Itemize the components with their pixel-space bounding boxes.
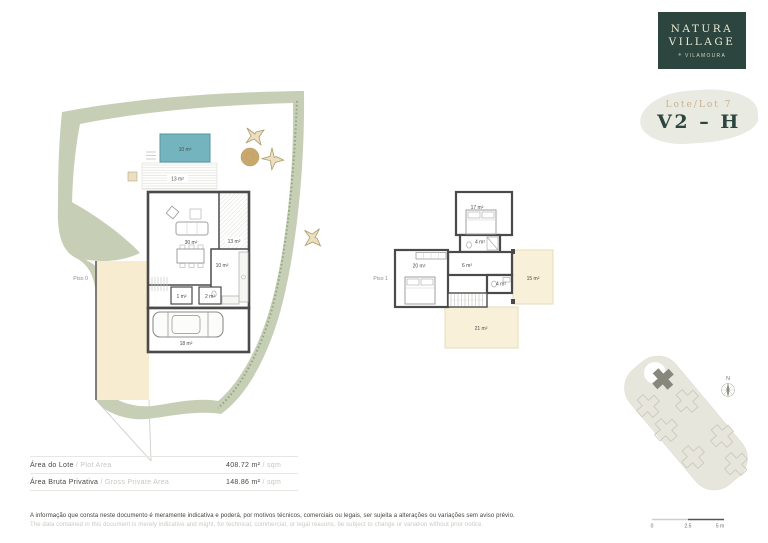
wall-stub [511, 299, 515, 304]
table-row: Área Bruta Privativa / Gross Private Are… [30, 473, 298, 491]
tree-icon [303, 228, 323, 249]
room-label-terrace-side: 15 m² [527, 276, 540, 282]
scale-label-zero: 0 [651, 524, 654, 530]
badge-unit-label: V2 – H [657, 111, 741, 133]
compass-north-label: N [726, 376, 730, 382]
room-label-pool: 10 m² [179, 147, 192, 153]
brochure-page: Piso 0 10 m² 13 m² 30 m² 13 m² 10 m² 1 m… [0, 0, 768, 543]
room-label-living: 30 m² [185, 240, 198, 246]
table-row: Área do Lote / Plot Area 408.72 m² / sqm [30, 456, 298, 473]
scale-label-max: 5 m [716, 524, 724, 530]
lot-badge: Lote/Lot 7 V2 – H [640, 90, 758, 143]
outdoor-shower-icon [128, 172, 137, 181]
row-value: 148.86 m² / sqm [226, 479, 281, 486]
driveway [96, 261, 149, 400]
bed-icon [466, 210, 496, 234]
row-value-number: 408.72 m² [226, 462, 260, 469]
car-icon [153, 312, 223, 337]
room-label-bedroom-a: 17 m² [471, 205, 484, 211]
disclaimer-en: The data contained in this document is m… [30, 521, 515, 530]
room-label-kitchen: 10 m² [216, 263, 229, 269]
side-table-icon [190, 209, 201, 219]
dining-set-icon [177, 245, 204, 268]
row-value-number: 148.86 m² [226, 479, 260, 486]
brand-location-line: ✳VILAMOURA [658, 52, 746, 59]
bed-icon [405, 277, 435, 304]
room-label-terrace-rear: 21 m² [475, 326, 488, 332]
room-label-wc: 2 m² [205, 294, 215, 300]
brand-logo: NATURA VILLAGE ✳VILAMOURA [658, 12, 746, 69]
floor-label-piso1: Piso 1 [373, 276, 388, 282]
floor-plan-piso1: Piso 1 17 m² 4 m² 6 m² 20 m² 4 m² 15 m² … [373, 192, 553, 348]
room-label-hall: 6 m² [462, 263, 472, 269]
room-label-bath-a: 4 m² [475, 240, 485, 246]
room-label-bath-b: 4 m² [496, 282, 506, 288]
row-label-pt: Área Bruta Privativa [30, 479, 98, 486]
room-label-closet: 1 m² [177, 294, 187, 300]
vilamoura-mark-icon: ✳ [678, 52, 683, 57]
brand-location: VILAMOURA [685, 53, 726, 59]
brand-name-line2: VILLAGE [658, 36, 746, 49]
floor-label-piso0: Piso 0 [73, 276, 88, 282]
row-value-unit: / sqm [260, 479, 281, 486]
room-label-bedroom-b: 20 m² [413, 264, 426, 270]
row-value-unit: / sqm [260, 462, 281, 469]
scale-label-mid: 2.5 [685, 524, 692, 530]
disclaimer-pt: A informação que consta neste documento … [30, 512, 515, 521]
site-plan-piso0: Piso 0 10 m² 13 m² 30 m² 13 m² 10 m² 1 m… [58, 91, 323, 461]
room-label-garage: 18 m² [180, 341, 193, 347]
disclaimer: A informação que consta neste documento … [30, 512, 515, 530]
row-value: 408.72 m² / sqm [226, 462, 281, 469]
row-label: Área do Lote / Plot Area [30, 462, 226, 469]
brand-name-line1: NATURA [658, 23, 746, 36]
compass-rose-icon [722, 383, 735, 398]
row-label: Área Bruta Privativa / Gross Private Are… [30, 479, 226, 486]
scale-bar: 0 2.5 5 m [651, 520, 725, 530]
wardrobe-icon [416, 253, 446, 260]
row-label-en: / Gross Private Area [98, 479, 169, 486]
row-label-pt: Área do Lote [30, 462, 74, 469]
sofa-icon [176, 222, 208, 235]
site-location-map: N [615, 346, 757, 499]
resort-band [615, 346, 757, 499]
badge-lot-label: Lote/Lot 7 [666, 100, 733, 110]
row-label-en: / Plot Area [74, 462, 112, 469]
areas-table: Área do Lote / Plot Area 408.72 m² / sqm… [30, 456, 298, 491]
tree-canopy-icon [241, 148, 259, 166]
room-label-terrace: 13 m² [228, 239, 241, 245]
room-label-deck: 13 m² [171, 177, 184, 183]
wall-stub [511, 249, 515, 254]
